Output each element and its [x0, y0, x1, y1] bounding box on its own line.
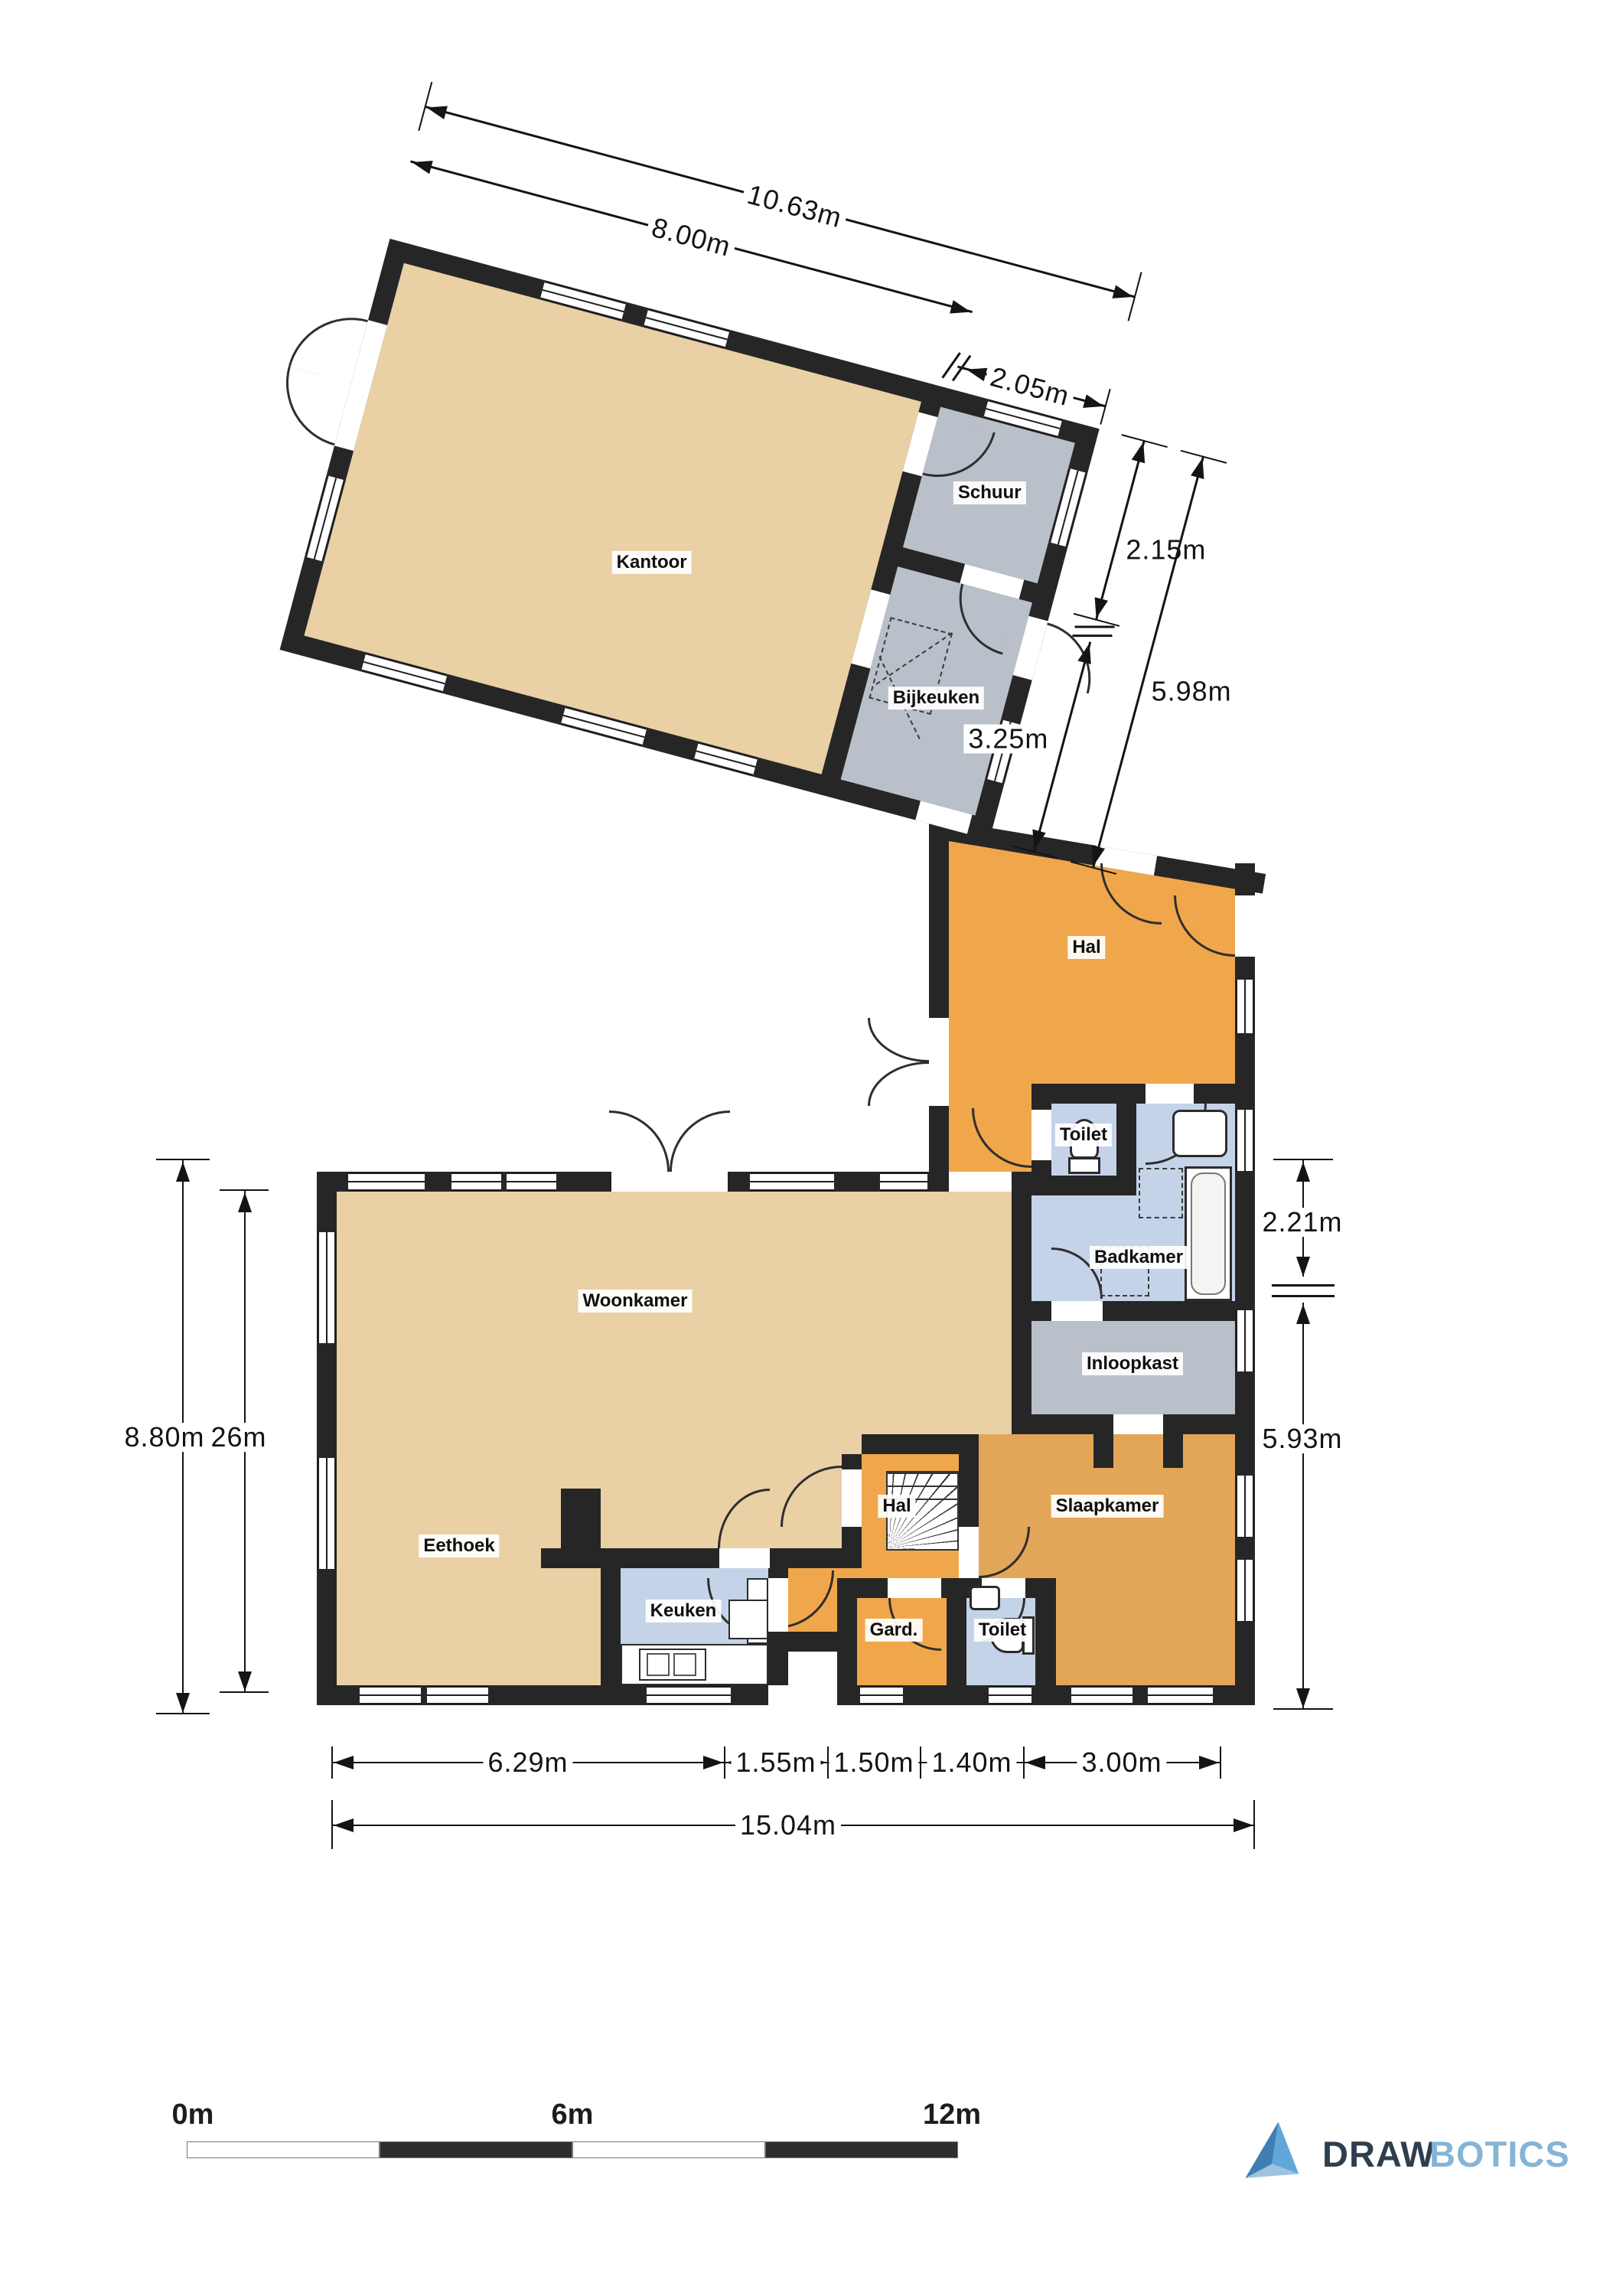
scale-label-0m: 0m — [172, 2099, 214, 2131]
window — [1235, 1476, 1255, 1537]
wall — [837, 1578, 857, 1685]
wall — [1035, 1578, 1056, 1685]
dim-break — [1072, 634, 1112, 637]
dim-break — [1272, 1295, 1335, 1297]
toilet-tank — [1068, 1157, 1100, 1174]
dim-label: 15.04m — [735, 1811, 841, 1840]
room-label-slaapkamer: Slaapkamer — [1051, 1495, 1164, 1518]
dim-tick — [156, 1713, 210, 1714]
wall — [929, 817, 949, 1172]
dim-arrow — [176, 1162, 190, 1182]
door-gap — [768, 1578, 788, 1632]
door-gap — [1235, 895, 1255, 957]
door-gap — [929, 1018, 949, 1106]
dim-label: 5.93m — [1257, 1424, 1347, 1453]
dim-tick — [156, 1159, 210, 1160]
wall-stub — [1093, 1434, 1113, 1468]
room-label-toilet-lower: Toilet — [974, 1619, 1031, 1642]
dim-label: 10.63m — [740, 178, 849, 233]
dim-arrow — [1199, 1756, 1219, 1769]
dim-line — [1302, 1303, 1304, 1710]
wall — [1031, 1176, 1136, 1195]
dim-arrow — [703, 1756, 723, 1769]
room-label-inloopkast: Inloopkast — [1082, 1352, 1183, 1375]
logo-text-botics: BOTICS — [1429, 2133, 1570, 2175]
window — [1235, 1310, 1255, 1371]
dim-label: 3.00m — [1077, 1748, 1166, 1777]
wall — [601, 1568, 621, 1685]
window — [1235, 1560, 1255, 1621]
room-label-bijkeuken: Bijkeuken — [888, 687, 984, 709]
room-label-badkamer: Badkamer — [1090, 1246, 1188, 1269]
scale-segment — [572, 2141, 765, 2158]
window — [1071, 1685, 1133, 1705]
dim-arrow — [1296, 1688, 1310, 1708]
dim-break — [1272, 1284, 1335, 1287]
door-gap — [1051, 1301, 1103, 1321]
dim-arrow — [334, 1756, 354, 1769]
dim-arrow — [1296, 1257, 1310, 1277]
logo-triangle-icon — [1240, 2116, 1310, 2187]
dim-tick — [1273, 1708, 1333, 1710]
dim-label: 2.21m — [1257, 1208, 1347, 1237]
dim-arrow — [1132, 440, 1150, 463]
dim-label: 1.40m — [927, 1748, 1016, 1777]
dim-arrow — [425, 101, 448, 119]
dim-label: 6.29m — [483, 1748, 572, 1777]
dim-arrow — [1296, 1162, 1310, 1182]
wall-stub — [561, 1489, 601, 1548]
window — [1148, 1685, 1213, 1705]
window — [1235, 1110, 1255, 1171]
window — [750, 1172, 834, 1192]
dim-tick — [220, 1189, 269, 1191]
dim-arrow — [1191, 456, 1209, 479]
kitchen-stove — [728, 1600, 768, 1639]
window — [1235, 980, 1255, 1033]
window — [880, 1172, 927, 1192]
dim-line — [1092, 456, 1204, 868]
door-gap — [842, 1469, 862, 1527]
door-gap — [888, 1578, 941, 1598]
room-label-toilet-upper: Toilet — [1055, 1124, 1112, 1146]
kitchen-sink-basin — [647, 1653, 670, 1676]
window — [647, 1685, 731, 1705]
sink — [1172, 1110, 1227, 1157]
window — [317, 1232, 337, 1343]
dim-tick — [1273, 1159, 1333, 1160]
scale-label-12m: 12m — [923, 2099, 981, 2131]
room-label-schuur: Schuur — [953, 481, 1026, 504]
window — [989, 1685, 1031, 1705]
dim-arrow — [238, 1671, 252, 1691]
wall — [541, 1548, 862, 1568]
dim-label: 8.00m — [644, 211, 738, 263]
room-label-keuken: Keuken — [646, 1600, 722, 1623]
dim-label: 5.98m — [1147, 677, 1237, 706]
door-gap — [1113, 1414, 1163, 1434]
dim-arrow — [238, 1192, 252, 1212]
dim-arrow — [410, 155, 433, 174]
window — [317, 1458, 337, 1569]
room-kantoor-fill — [304, 263, 921, 775]
dim-tick — [220, 1691, 269, 1693]
door-gap — [719, 1548, 770, 1568]
wall — [947, 1578, 966, 1685]
dim-label: 3.25m — [963, 724, 1053, 753]
entry-door-arc — [670, 1110, 730, 1172]
shower-outline — [1139, 1168, 1183, 1218]
dim-label: 26m — [206, 1423, 271, 1452]
window — [507, 1172, 556, 1192]
logo-text-draw: DRAW — [1322, 2133, 1436, 2175]
dim-arrow — [1234, 1818, 1253, 1832]
room-label-gard: Gard. — [865, 1619, 923, 1642]
window — [451, 1172, 501, 1192]
dim-arrow — [1083, 394, 1106, 413]
kitchen-sink-basin — [673, 1653, 696, 1676]
door-gap — [959, 1527, 979, 1578]
dim-arrow — [1296, 1304, 1310, 1324]
room-label-eethoek: Eethoek — [419, 1534, 499, 1557]
dim-arrow — [1112, 285, 1135, 303]
room-label-kantoor: Kantoor — [612, 551, 692, 574]
entry-door-arc — [609, 1110, 670, 1172]
scale-segment — [187, 2141, 380, 2158]
dim-arrow — [334, 1818, 354, 1832]
door-arc — [868, 1062, 929, 1106]
drawbotics-logo: DRAW BOTICS — [1240, 2116, 1561, 2193]
entry-gap — [609, 1172, 730, 1192]
window — [427, 1685, 488, 1705]
dim-arrow — [950, 300, 973, 318]
scale-label-6m: 6m — [552, 2099, 594, 2131]
dim-label: 8.80m — [119, 1423, 209, 1452]
room-label-hal-upper: Hal — [1067, 936, 1105, 959]
floorplan-page: Hal — [0, 0, 1623, 2296]
scale-segment — [380, 2141, 572, 2158]
window — [860, 1685, 903, 1705]
dim-label: 1.55m — [731, 1748, 820, 1777]
wall — [1012, 1172, 1031, 1434]
room-label-woonkamer: Woonkamer — [578, 1290, 693, 1313]
window — [348, 1172, 425, 1192]
bathtub-inner — [1191, 1172, 1226, 1295]
door-gap — [1031, 1110, 1051, 1160]
dim-label: 1.50m — [829, 1748, 918, 1777]
dim-break — [1075, 626, 1115, 628]
dim-arrow — [1025, 1756, 1045, 1769]
dim-arrow — [965, 363, 988, 381]
window — [360, 1685, 421, 1705]
sink — [970, 1586, 1000, 1610]
door-arc — [868, 1018, 929, 1062]
room-label-hal: Hal — [878, 1495, 915, 1518]
dim-label: 2.15m — [1121, 535, 1211, 564]
dim-arrow — [1090, 597, 1108, 620]
door-gap — [1146, 1084, 1194, 1104]
wall-stub — [1163, 1434, 1183, 1468]
dim-line — [1095, 441, 1146, 621]
scale-segment — [765, 2141, 958, 2158]
dim-arrow — [176, 1693, 190, 1713]
